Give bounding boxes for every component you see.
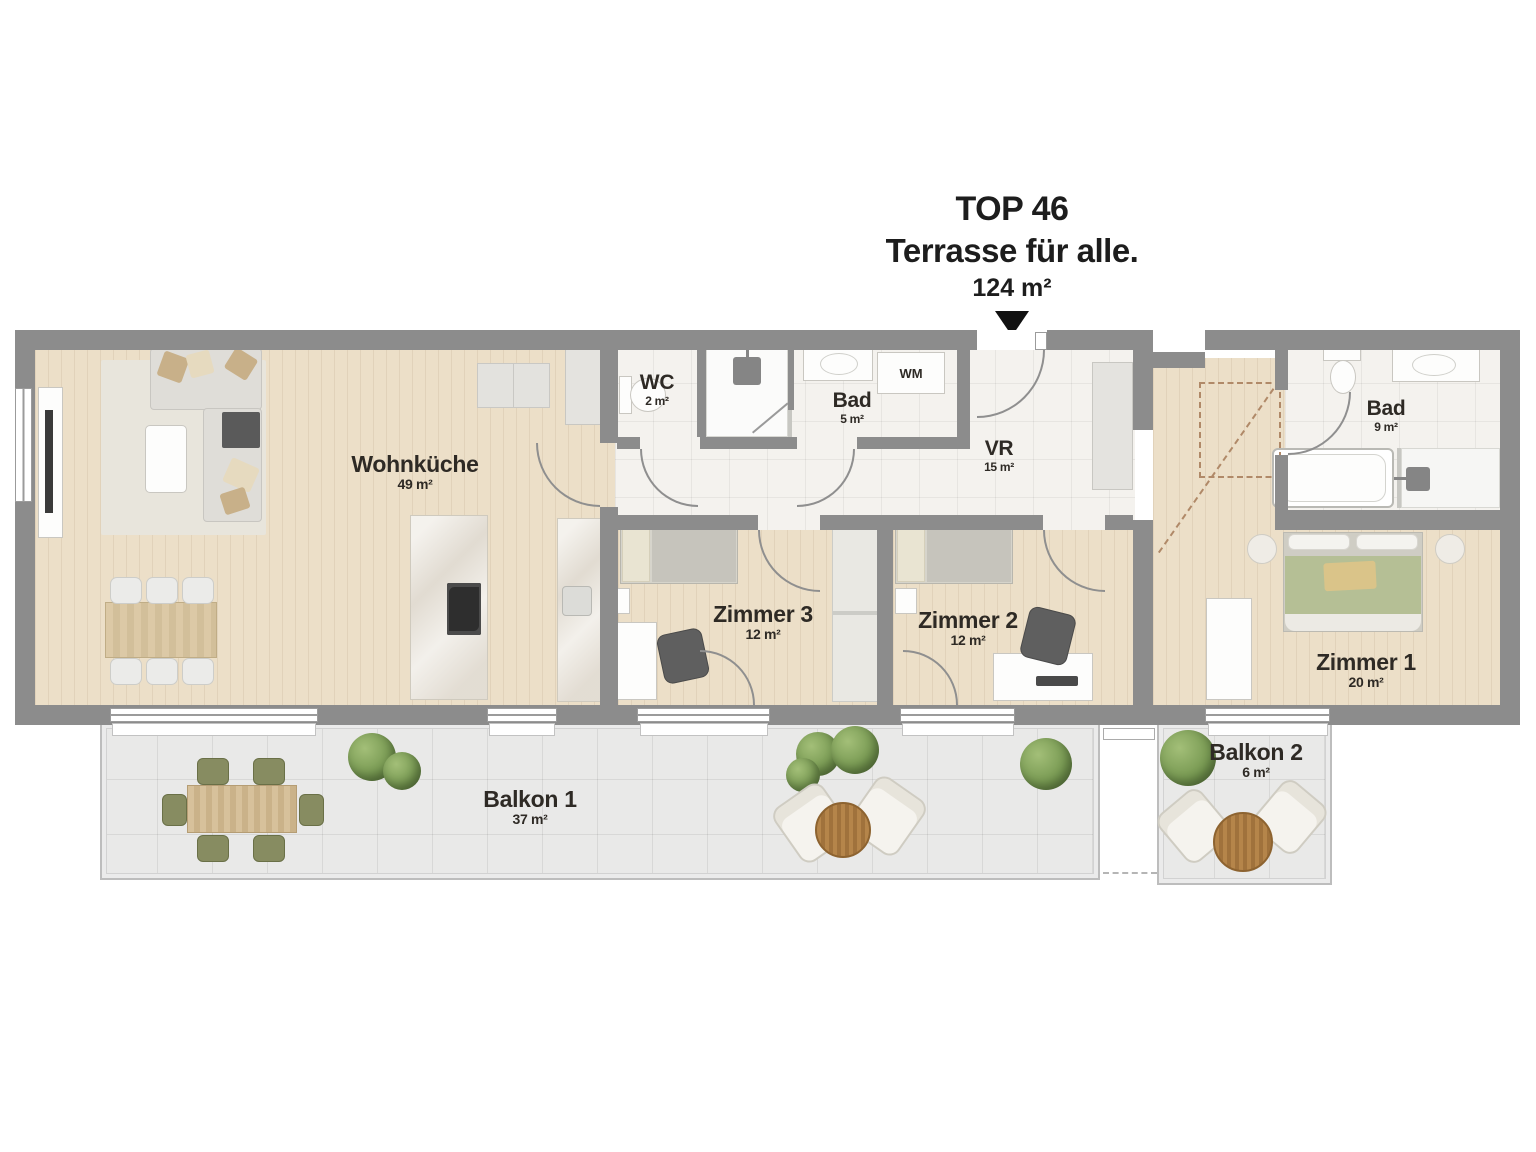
window [15,388,32,502]
room-area: 5 m² [817,413,887,426]
outdoor-chair [162,794,187,826]
wall [820,515,1043,530]
dining-chair [146,658,178,685]
sink-basin [1412,354,1456,376]
room-area: 49 m² [320,477,510,492]
room-name: Zimmer 3 [698,602,828,627]
wall [15,330,977,350]
wall [617,437,640,449]
dining-chair [182,658,214,685]
washing-machine: WM [877,352,945,394]
room-name: Wohnküche [320,452,510,477]
wall [1500,330,1520,725]
room-area: 20 m² [1301,675,1431,690]
door-threshold [489,723,555,736]
room-name: VR [964,438,1034,461]
wall [1205,330,1520,350]
room-label-vr: VR 15 m² [964,438,1034,474]
round-side-table [1213,812,1273,872]
bathtub-inner [1280,454,1386,502]
shower-head-icon [1406,467,1430,491]
plant-bush [1020,738,1072,790]
room-label-wc: WC 2 m² [627,372,687,408]
bed-pillow [1323,561,1376,592]
room-area: 2 m² [627,395,687,408]
sink-basin [820,353,858,375]
room-label-bad5: Bad 5 m² [817,390,887,426]
wall [617,515,758,530]
room-area: 9 m² [1351,421,1421,434]
room-name: WC [627,372,687,395]
room-label-zimmer2: Zimmer 2 12 m² [903,608,1033,648]
balcony-door [1205,708,1330,722]
bed-foot-sheet [1285,614,1421,631]
wall [877,520,893,705]
room-area: 12 m² [903,633,1033,648]
bed-blanket [652,528,736,582]
bed-pillow [622,528,650,582]
bed-headboard-pillow [1288,534,1350,550]
window [110,708,318,722]
room-name: Balkon 2 [1191,740,1321,765]
wall [1275,345,1288,390]
unit-number: TOP 46 [862,190,1162,229]
outdoor-chair [197,835,229,862]
plan-subtitle: Terrasse für alle. [862,232,1162,270]
room-label-balkon2: Balkon 2 6 m² [1191,740,1321,780]
room-label-zimmer1: Zimmer 1 20 m² [1301,650,1431,690]
window [637,708,770,722]
room-area: 6 m² [1191,765,1321,780]
terrace-door [487,708,557,722]
tall-cabinet [565,345,603,425]
room-name: Zimmer 2 [903,608,1033,633]
door-threshold [640,723,768,736]
dining-table [105,602,217,658]
wall [700,437,797,449]
nightstand-round [1435,534,1465,564]
kitchen-upper-cabinet [477,363,550,408]
balcony-gap-box [1103,728,1155,740]
room-label-balkon1: Balkon 1 37 m² [465,787,595,827]
dining-chair [182,577,214,604]
room-name: Bad [817,390,887,413]
floorplan-canvas: TOP 46 Terrasse für alle. 124 m² [0,0,1536,1152]
sofa-table [222,412,260,448]
plant-bush [383,752,421,790]
tv [45,410,53,513]
outdoor-dining-table [187,785,297,833]
door-threshold [902,723,1014,736]
room-label-bad9: Bad 9 m² [1351,398,1421,434]
wall [957,345,970,443]
outdoor-chair [299,794,324,826]
bed-blanket [927,528,1011,582]
shower-glass [788,410,792,437]
window [900,708,1015,722]
keyboard [1036,676,1078,686]
sideboard [1206,598,1252,700]
outdoor-chair [253,758,285,785]
shower-head-stem [1394,477,1408,480]
door-threshold [1208,723,1328,736]
toilet-bowl [1330,360,1356,394]
wall [1047,330,1135,350]
room-name: Bad [1351,398,1421,421]
wall [697,345,706,437]
wardrobe [832,524,878,702]
dining-chair [110,577,142,604]
coffee-table [145,425,187,493]
room-label-zimmer3: Zimmer 3 12 m² [698,602,828,642]
washing-machine-label: WM [899,366,922,381]
door-threshold [112,723,316,736]
balcony-gap-dashed-line [1103,872,1157,874]
round-side-table [815,802,871,858]
wall [1133,330,1153,430]
outdoor-chair [197,758,229,785]
room-area: 37 m² [465,812,595,827]
wall [600,345,618,443]
cooktop [447,583,481,635]
room-area: 12 m² [698,627,828,642]
wall [1105,515,1133,530]
wall [1285,510,1500,530]
room-label-wohnkueche: Wohnküche 49 m² [320,452,510,492]
plant-bush [831,726,879,774]
room-name: Zimmer 1 [1301,650,1431,675]
dining-chair [110,658,142,685]
room-name: Balkon 1 [465,787,595,812]
bed-pillow [897,528,925,582]
room-area: 15 m² [964,461,1034,474]
kitchen-sink [562,586,592,616]
dining-chair [146,577,178,604]
wall [1133,520,1153,705]
bed-headboard-pillow [1356,534,1418,550]
outdoor-chair [253,835,285,862]
hall-cabinet [1092,362,1133,490]
plan-title-block: TOP 46 Terrasse für alle. 124 m² [862,190,1162,336]
wall [600,507,618,705]
entrance-door-leaf [1035,332,1047,350]
total-area: 124 m² [862,274,1162,303]
shower-head-icon [733,357,761,385]
wall [788,345,794,410]
nightstand-round [1247,534,1277,564]
wall [857,437,970,449]
